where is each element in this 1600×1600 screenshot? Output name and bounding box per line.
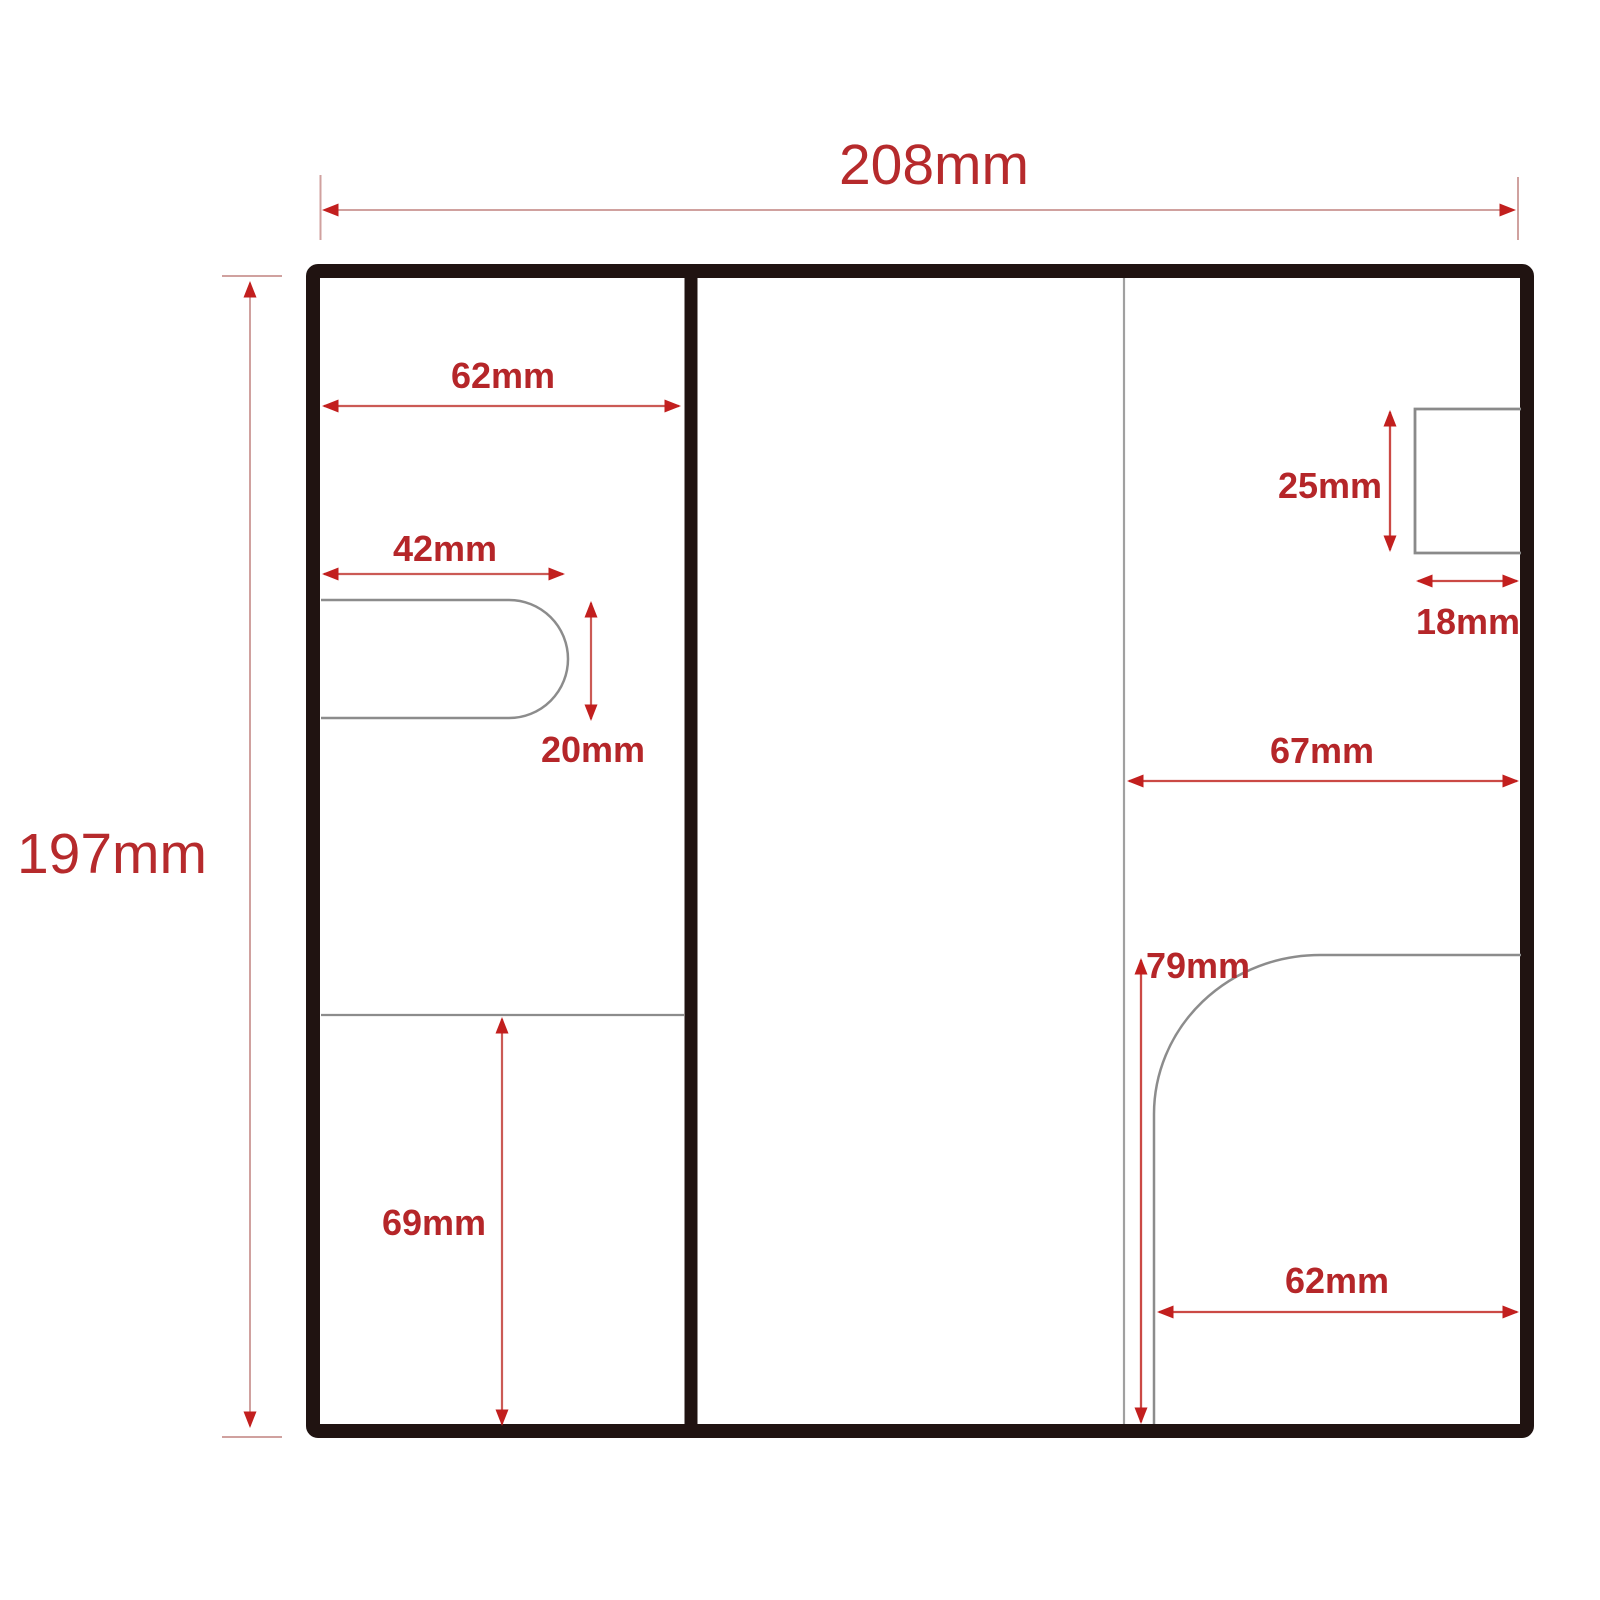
- svg-text:18mm: 18mm: [1416, 601, 1520, 642]
- svg-text:20mm: 20mm: [541, 729, 645, 770]
- svg-text:197mm: 197mm: [17, 822, 207, 886]
- svg-text:62mm: 62mm: [451, 355, 555, 396]
- svg-text:62mm: 62mm: [1285, 1260, 1389, 1301]
- svg-text:67mm: 67mm: [1270, 730, 1374, 771]
- svg-text:79mm: 79mm: [1146, 945, 1250, 986]
- svg-text:42mm: 42mm: [393, 528, 497, 569]
- svg-text:208mm: 208mm: [839, 133, 1029, 197]
- svg-text:69mm: 69mm: [382, 1202, 486, 1243]
- svg-text:25mm: 25mm: [1278, 465, 1382, 506]
